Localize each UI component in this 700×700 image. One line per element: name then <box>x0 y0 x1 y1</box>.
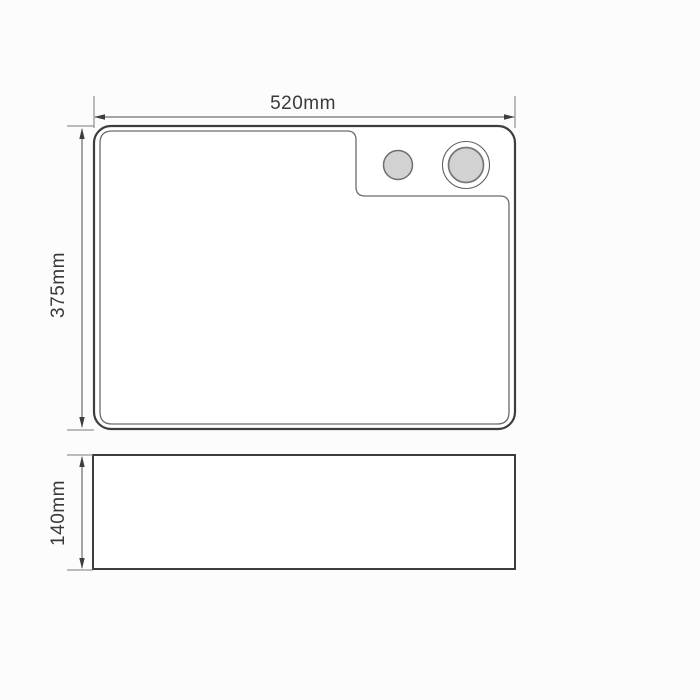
arrow-down-icon <box>79 417 84 428</box>
dimension-depth: 140mm <box>48 455 93 570</box>
arrow-up-icon <box>79 128 84 139</box>
dimension-height: 375mm <box>48 126 94 430</box>
width-dimension-label: 520mm <box>270 93 336 114</box>
arrow-left-icon <box>94 114 105 120</box>
depth-dimension-label: 140mm <box>48 480 69 546</box>
top-view <box>94 126 515 429</box>
arrow-down-icon <box>79 558 84 569</box>
arrow-right-icon <box>504 114 515 120</box>
tap-hole-circle <box>384 151 413 180</box>
side-view-outline <box>93 455 515 569</box>
arrow-up-icon <box>79 456 84 467</box>
waste-hole-circle <box>449 148 484 183</box>
drawing-canvas: 520mm 375mm 140mm <box>0 0 700 700</box>
dimension-width: 520mm <box>94 93 515 128</box>
height-dimension-label: 375mm <box>48 252 69 318</box>
basin-technical-drawing: 520mm 375mm 140mm <box>0 0 700 700</box>
side-view <box>93 455 515 569</box>
